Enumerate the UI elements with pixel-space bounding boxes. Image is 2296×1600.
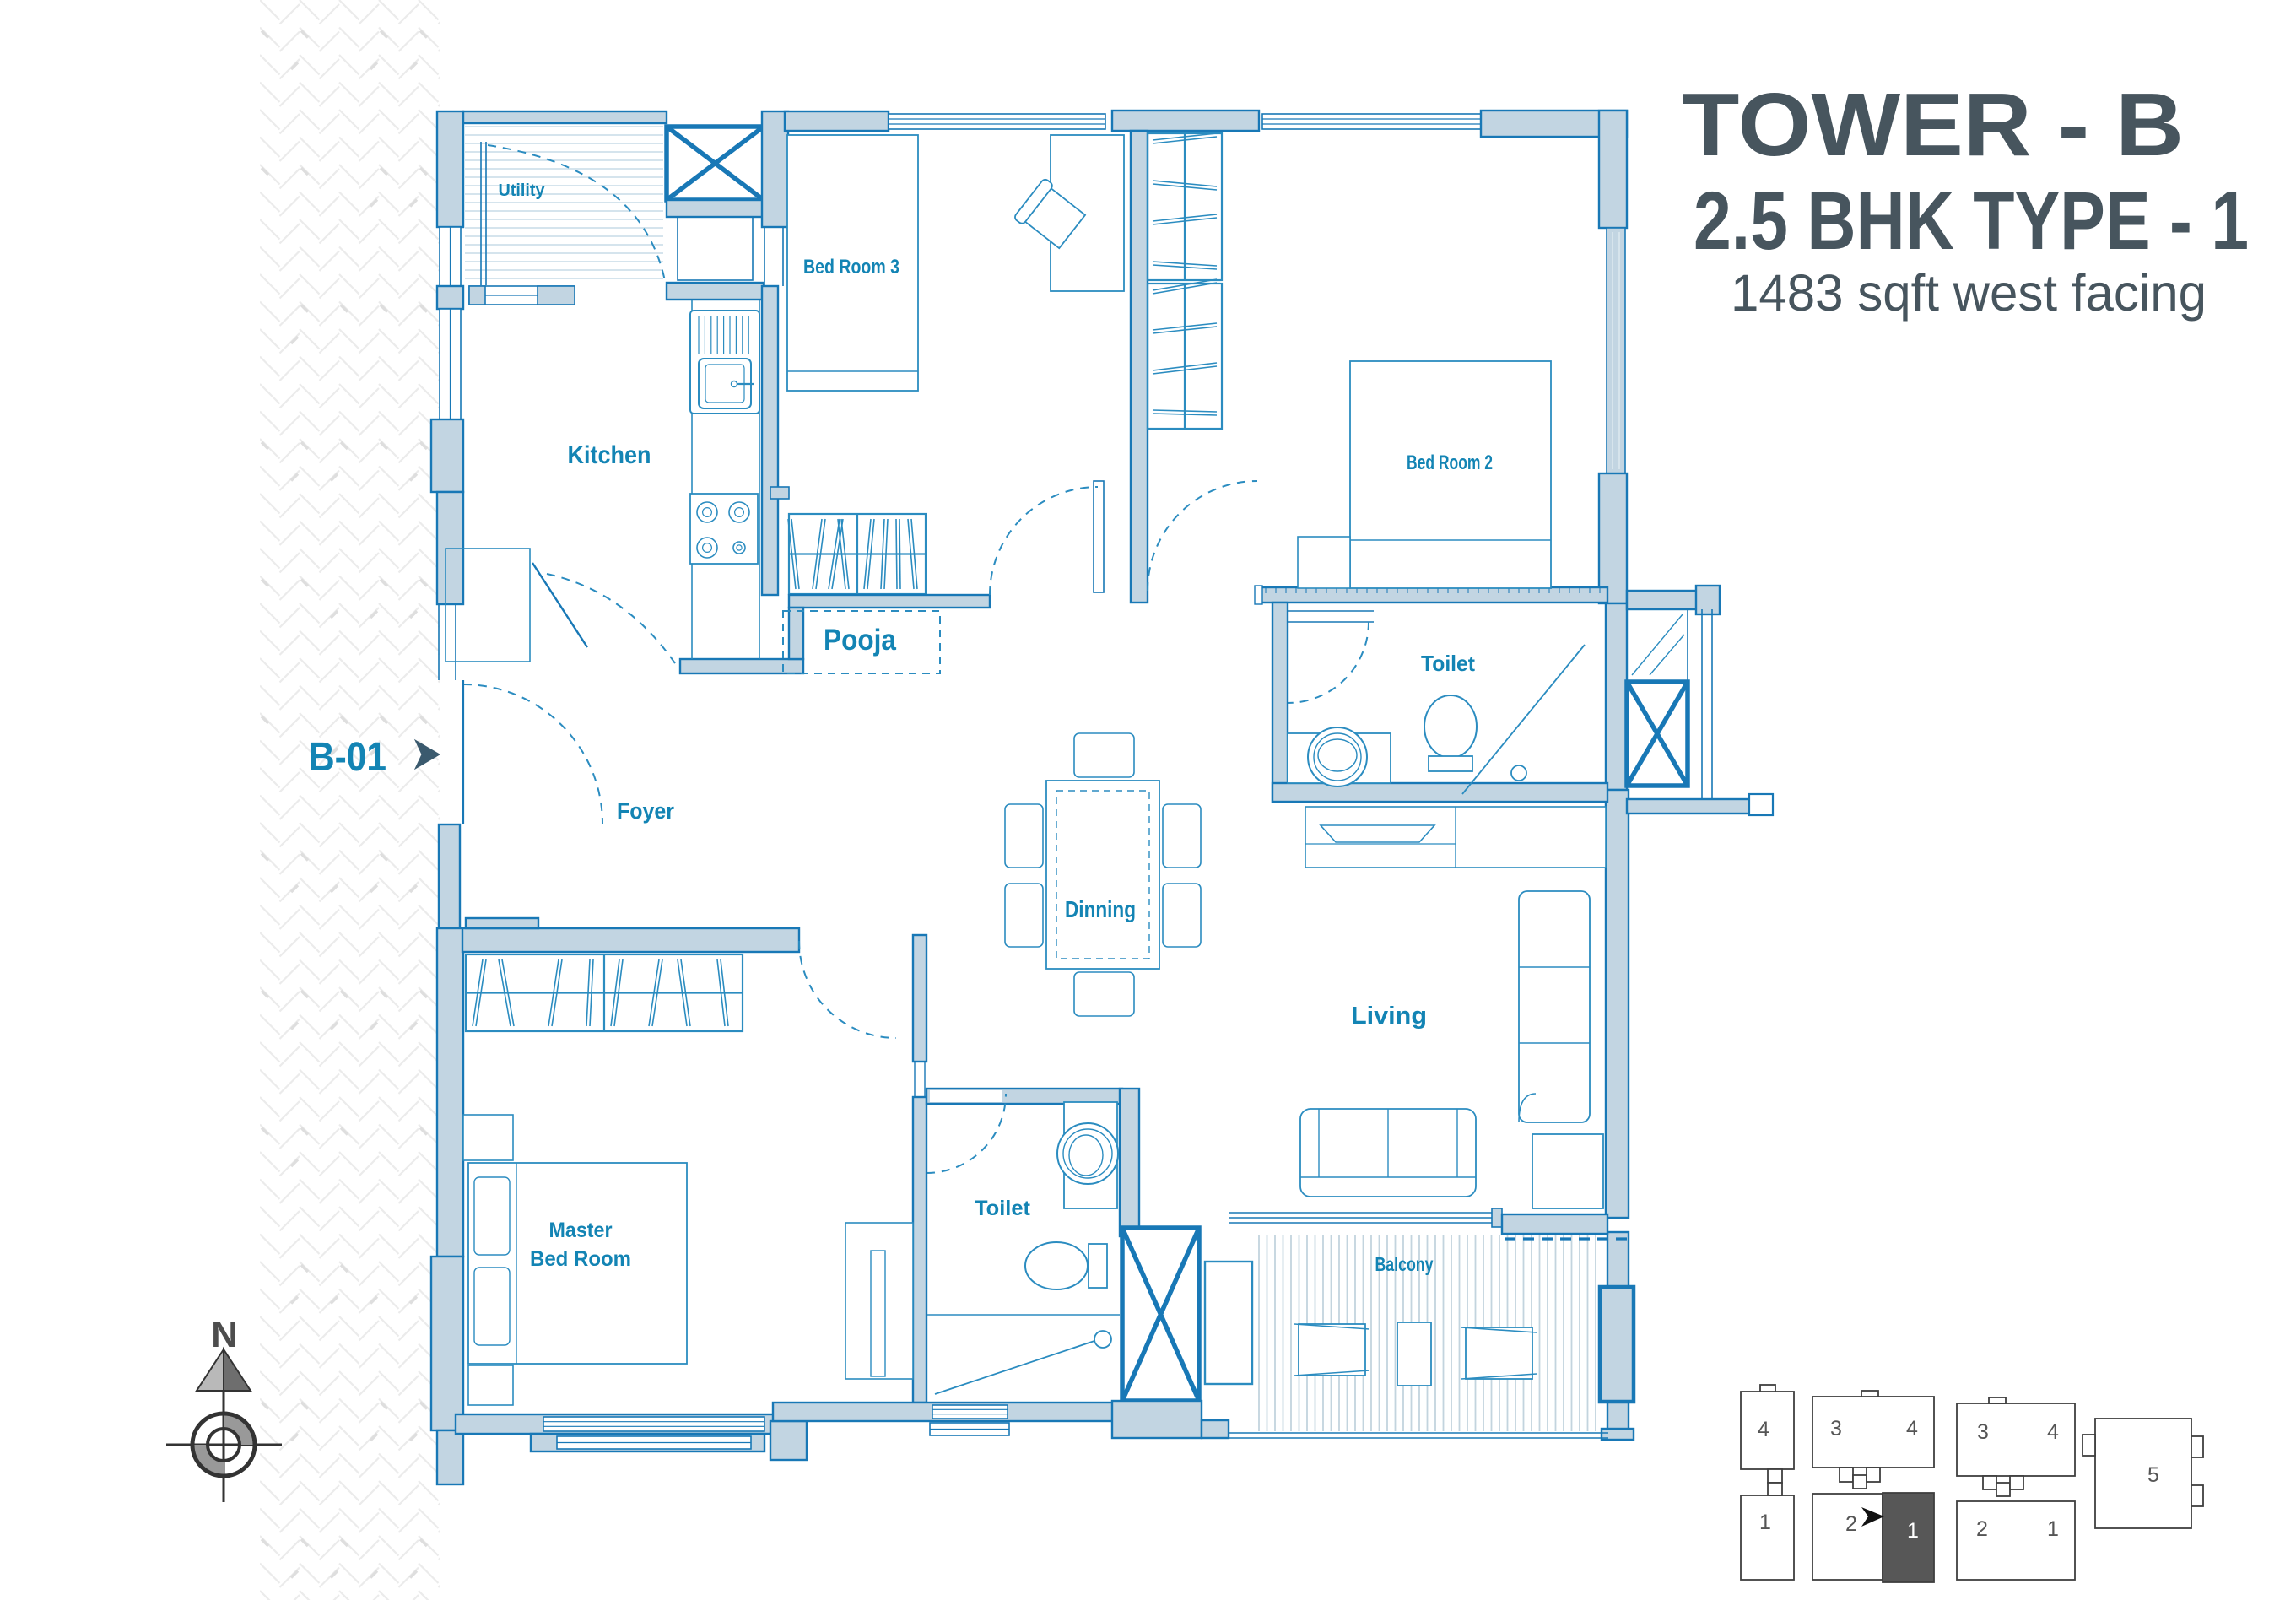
svg-text:1483 sqft west facing: 1483 sqft west facing <box>1731 264 2207 322</box>
svg-text:Pooja: Pooja <box>824 624 896 657</box>
svg-text:Toilet: Toilet <box>1421 651 1475 676</box>
svg-text:TOWER - B: TOWER - B <box>1682 75 2184 175</box>
svg-text:2: 2 <box>1845 1512 1857 1536</box>
svg-text:Toilet: Toilet <box>975 1197 1031 1220</box>
svg-text:1: 1 <box>1759 1511 1771 1534</box>
svg-text:4: 4 <box>1906 1417 1918 1441</box>
svg-text:3: 3 <box>1977 1420 1989 1444</box>
svg-text:Living: Living <box>1351 1003 1427 1030</box>
svg-text:Bed Room: Bed Room <box>530 1247 631 1271</box>
svg-text:Foyer: Foyer <box>617 798 674 824</box>
svg-text:2: 2 <box>1976 1517 1988 1541</box>
svg-text:Kitchen: Kitchen <box>568 441 651 469</box>
svg-text:Utility: Utility <box>499 181 546 200</box>
svg-text:3: 3 <box>1830 1417 1842 1441</box>
svg-text:B-01: B-01 <box>309 735 386 780</box>
svg-text:Bed Room 3: Bed Room 3 <box>803 256 899 278</box>
svg-text:Balcony: Balcony <box>1375 1253 1434 1275</box>
svg-text:5: 5 <box>2147 1463 2159 1487</box>
svg-text:Master: Master <box>549 1219 613 1242</box>
svg-text:1: 1 <box>1907 1519 1919 1543</box>
svg-text:4: 4 <box>1758 1418 1769 1441</box>
svg-text:Dinning: Dinning <box>1065 896 1136 922</box>
svg-text:4: 4 <box>2047 1420 2059 1444</box>
svg-text:2.5 BHK TYPE - 1: 2.5 BHK TYPE - 1 <box>1694 175 2249 267</box>
svg-text:1: 1 <box>2047 1517 2059 1541</box>
svg-text:Bed Room 2: Bed Room 2 <box>1407 451 1493 474</box>
